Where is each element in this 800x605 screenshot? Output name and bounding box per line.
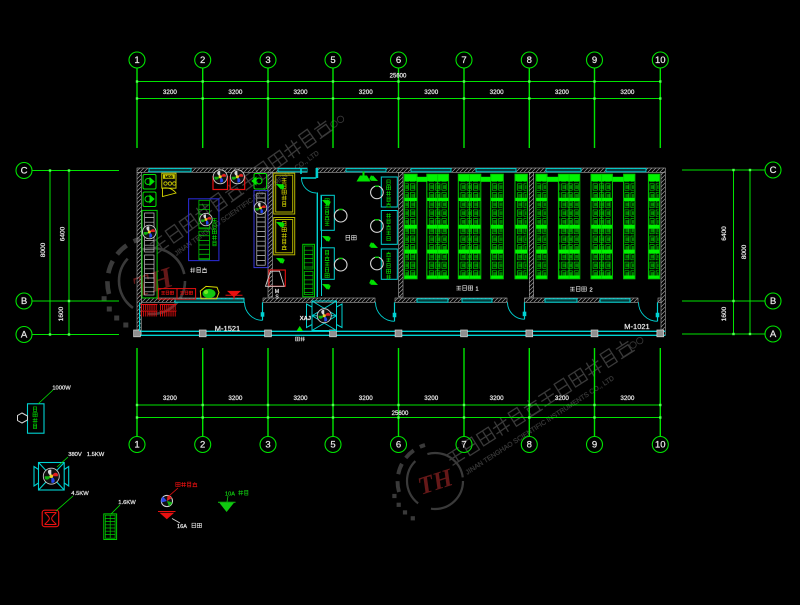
svg-text:1600: 1600 — [58, 306, 65, 321]
svg-text:3200: 3200 — [620, 89, 635, 96]
svg-text:3200: 3200 — [293, 395, 308, 402]
svg-text:3200: 3200 — [490, 89, 505, 96]
svg-text:2: 2 — [200, 440, 205, 451]
svg-text:M-1021: M-1021 — [624, 322, 649, 331]
svg-text:380V: 380V — [68, 452, 82, 458]
svg-text:3200: 3200 — [359, 89, 374, 96]
svg-text:3200: 3200 — [490, 395, 505, 402]
svg-text:MDB: MDB — [165, 175, 173, 179]
svg-text:B: B — [21, 296, 27, 307]
svg-text:1.6KW: 1.6KW — [118, 500, 136, 506]
svg-text:2: 2 — [589, 288, 592, 294]
svg-text:9: 9 — [592, 440, 597, 451]
svg-text:1: 1 — [475, 287, 478, 293]
svg-text:B: B — [770, 296, 776, 307]
svg-text:25600: 25600 — [390, 73, 407, 79]
svg-text:3200: 3200 — [228, 89, 243, 96]
svg-text:3200: 3200 — [359, 395, 374, 402]
svg-text:5: 5 — [330, 55, 335, 66]
svg-text:8: 8 — [527, 440, 532, 451]
svg-text:3200: 3200 — [163, 395, 178, 402]
svg-text:4.5KW: 4.5KW — [71, 491, 89, 497]
svg-text:7: 7 — [461, 440, 466, 451]
svg-text:3200: 3200 — [424, 89, 439, 96]
svg-text:3: 3 — [265, 440, 270, 451]
svg-text:3200: 3200 — [555, 395, 570, 402]
svg-text:3200: 3200 — [424, 395, 439, 402]
svg-text:16A: 16A — [177, 524, 187, 530]
svg-text:3200: 3200 — [555, 89, 570, 96]
svg-text:8000: 8000 — [40, 242, 47, 257]
svg-text:3200: 3200 — [228, 395, 243, 402]
svg-text:2: 2 — [200, 55, 205, 66]
svg-text:3200: 3200 — [293, 89, 308, 96]
svg-text:8000: 8000 — [741, 244, 748, 259]
svg-text:9: 9 — [592, 55, 597, 66]
svg-text:3200: 3200 — [620, 395, 635, 402]
svg-text:5: 5 — [330, 440, 335, 451]
svg-text:10: 10 — [655, 440, 666, 451]
svg-text:10A: 10A — [225, 491, 235, 497]
svg-text:6400: 6400 — [60, 226, 67, 241]
svg-text:6400: 6400 — [721, 226, 728, 241]
svg-text:6: 6 — [396, 55, 401, 66]
svg-text:3200: 3200 — [163, 89, 178, 96]
svg-text:C: C — [21, 166, 28, 177]
svg-text:3: 3 — [265, 55, 270, 66]
svg-text:1.5KW: 1.5KW — [87, 452, 105, 458]
svg-text:1000W: 1000W — [52, 386, 71, 392]
svg-text:A: A — [770, 329, 777, 340]
svg-text:25600: 25600 — [392, 411, 409, 417]
svg-text:6: 6 — [396, 440, 401, 451]
svg-text:C: C — [770, 165, 777, 176]
svg-text:XAJ: XAJ — [300, 316, 311, 322]
svg-text:8: 8 — [527, 55, 532, 66]
svg-text:1600: 1600 — [721, 306, 728, 321]
svg-text:7: 7 — [461, 55, 466, 66]
svg-text:10: 10 — [655, 55, 666, 66]
svg-text:A: A — [21, 330, 28, 341]
svg-text:M-1521: M-1521 — [215, 324, 240, 333]
svg-text:1: 1 — [134, 440, 139, 451]
svg-text:1: 1 — [134, 55, 139, 66]
